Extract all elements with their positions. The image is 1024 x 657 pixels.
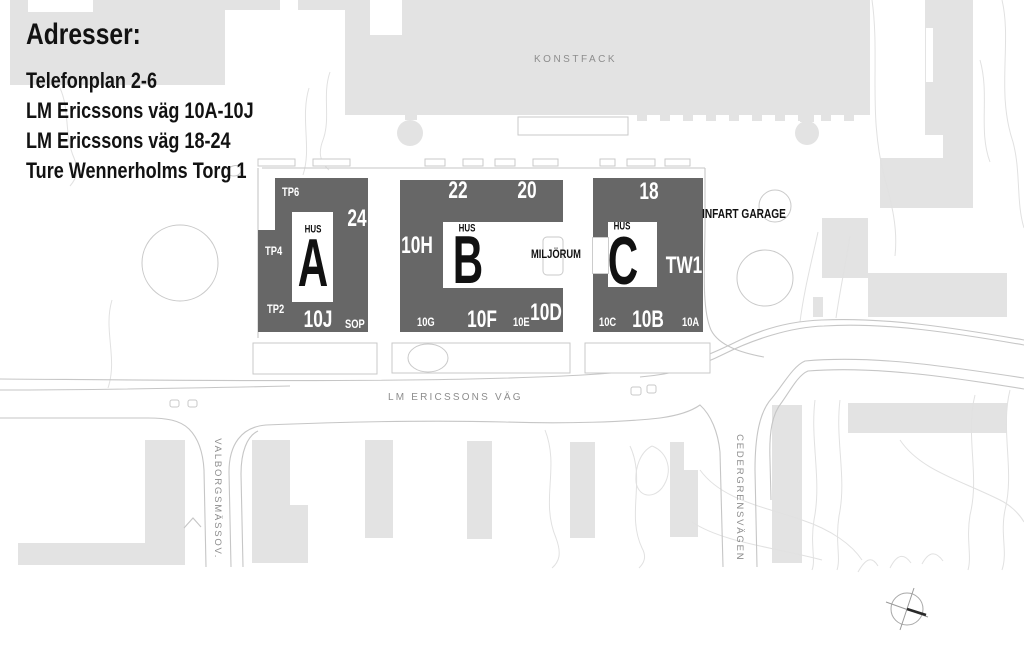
address-line: LM Ericssons väg 10A-10J — [26, 96, 254, 126]
address-number-22: 22 — [445, 179, 472, 203]
label-sop: SOP — [345, 318, 370, 330]
address-block: Adresser: Telefonplan 2-6 LM Ericssons v… — [26, 18, 254, 186]
address-number-10f: 10F — [461, 308, 502, 332]
entrance-label-tp2: TP2 — [267, 303, 289, 315]
address-number-10g: 10G — [417, 316, 440, 328]
entrance-label-tp6: TP6 — [282, 186, 304, 198]
address-number-10d: 10D — [524, 301, 568, 325]
address-line: LM Ericssons väg 18-24 — [26, 126, 254, 156]
street-label-cedergrensvagen: CEDERGRENSVÄGEN — [734, 433, 744, 563]
address-line: Ture Wennerholms Torg 1 — [26, 156, 254, 186]
address-heading: Adresser: — [26, 18, 254, 52]
address-number-10a: 10A — [682, 316, 704, 328]
street-label-lm-ericssons-vag: LM ERICSSONS VÄG — [388, 393, 523, 403]
address-number-10c: 10C — [599, 316, 621, 328]
street-label-valborgsmassov: VALBORGSMÄSSOV. — [212, 434, 222, 564]
compass-icon — [886, 588, 928, 630]
address-number-10h: 10H — [395, 234, 439, 258]
address-number-10b: 10B — [626, 308, 670, 332]
address-number-20: 20 — [514, 179, 541, 203]
konstfack-label: KONSTFACK — [534, 55, 617, 65]
entrance-label-tp4: TP4 — [265, 245, 287, 257]
address-number-24: 24 — [344, 207, 371, 231]
miljorum-label: MILJÖRUM — [531, 248, 595, 260]
building-a-letter: A — [288, 229, 337, 297]
building-c-letter: C — [598, 227, 647, 295]
address-number-10j: 10J — [298, 308, 338, 332]
site-map: Adresser: Telefonplan 2-6 LM Ericssons v… — [0, 0, 1024, 657]
address-number-18: 18 — [636, 180, 663, 204]
infart-garage-label: INFART GARAGE — [702, 207, 810, 220]
building-b-letter: B — [443, 226, 492, 294]
label-tw1: TW1 — [659, 254, 710, 278]
address-line: Telefonplan 2-6 — [26, 66, 254, 96]
